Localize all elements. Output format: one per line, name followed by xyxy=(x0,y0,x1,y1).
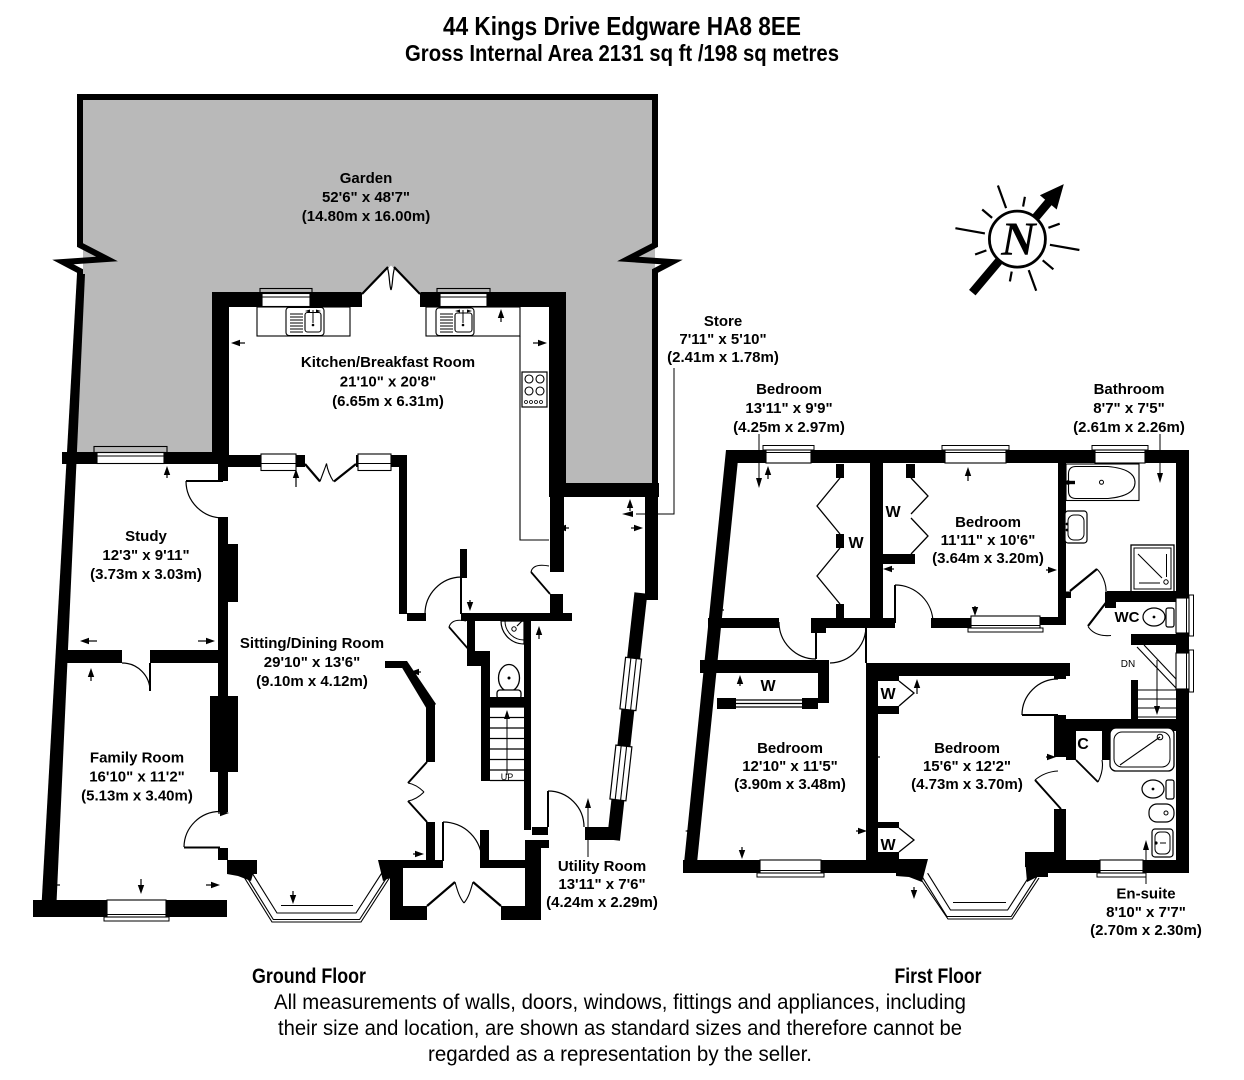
svg-text:Sitting/Dining Room: Sitting/Dining Room xyxy=(240,635,384,652)
svg-text:W: W xyxy=(880,837,896,854)
svg-text:their size and location, are s: their size and location, are shown as st… xyxy=(278,1017,962,1040)
svg-text:All measurements of walls, doo: All measurements of walls, doors, window… xyxy=(274,991,966,1014)
svg-text:52'6" x 48'7": 52'6" x 48'7" xyxy=(322,189,410,206)
svg-text:Ground Floor: Ground Floor xyxy=(252,965,366,988)
svg-text:Bedroom: Bedroom xyxy=(934,740,1000,757)
svg-text:12'3" x 9'11": 12'3" x 9'11" xyxy=(102,547,189,564)
svg-text:WC: WC xyxy=(1115,609,1140,626)
svg-text:Family Room: Family Room xyxy=(90,750,184,767)
svg-text:15'6" x 12'2": 15'6" x 12'2" xyxy=(923,758,1011,775)
svg-text:(3.64m x 3.20m): (3.64m x 3.20m) xyxy=(932,550,1044,567)
svg-text:Study: Study xyxy=(125,528,167,545)
svg-text:Gross Internal Area 2131 sq ft: Gross Internal Area 2131 sq ft /198 sq m… xyxy=(405,40,839,66)
svg-text:44 Kings Drive Edgware HA8 8EE: 44 Kings Drive Edgware HA8 8EE xyxy=(443,11,801,41)
svg-text:(4.25m x 2.97m): (4.25m x 2.97m) xyxy=(733,419,845,436)
svg-text:W: W xyxy=(885,504,901,521)
svg-text:Kitchen/Breakfast Room: Kitchen/Breakfast Room xyxy=(301,354,475,371)
svg-text:(4.24m x 2.29m): (4.24m x 2.29m) xyxy=(546,894,658,911)
svg-text:Store: Store xyxy=(704,313,742,330)
svg-text:16'10" x 11'2": 16'10" x 11'2" xyxy=(89,769,185,786)
svg-text:C: C xyxy=(1077,736,1089,753)
svg-text:N: N xyxy=(1000,213,1038,266)
svg-text:21'10" x 20'8": 21'10" x 20'8" xyxy=(340,374,436,391)
svg-text:(2.70m x 2.30m): (2.70m x 2.30m) xyxy=(1090,922,1202,939)
svg-text:Bedroom: Bedroom xyxy=(955,514,1021,531)
svg-text:(14.80m x 16.00m): (14.80m x 16.00m) xyxy=(302,208,430,225)
svg-text:En-suite: En-suite xyxy=(1116,886,1175,903)
svg-text:(2.41m x 1.78m): (2.41m x 1.78m) xyxy=(667,349,779,366)
svg-text:W: W xyxy=(880,686,896,703)
svg-text:8'10" x 7'7": 8'10" x 7'7" xyxy=(1106,904,1186,921)
svg-text:(4.73m x 3.70m): (4.73m x 3.70m) xyxy=(911,776,1023,793)
svg-text:W: W xyxy=(848,535,864,552)
svg-text:Bedroom: Bedroom xyxy=(756,381,822,398)
svg-text:7'11" x 5'10": 7'11" x 5'10" xyxy=(679,331,766,348)
svg-text:(3.90m x 3.48m): (3.90m x 3.48m) xyxy=(734,776,846,793)
svg-text:First Floor: First Floor xyxy=(895,965,982,988)
svg-text:11'11" x 10'6": 11'11" x 10'6" xyxy=(941,532,1036,549)
svg-text:12'10" x 11'5": 12'10" x 11'5" xyxy=(742,758,838,775)
svg-text:Bathroom: Bathroom xyxy=(1094,381,1165,398)
svg-text:DN: DN xyxy=(1121,659,1135,670)
svg-text:(3.73m x 3.03m): (3.73m x 3.03m) xyxy=(90,566,202,583)
svg-text:(2.61m x 2.26m): (2.61m x 2.26m) xyxy=(1073,419,1185,436)
svg-text:8'7" x 7'5": 8'7" x 7'5" xyxy=(1093,400,1164,417)
svg-text:Bedroom: Bedroom xyxy=(757,740,823,757)
svg-text:(9.10m x 4.12m): (9.10m x 4.12m) xyxy=(256,673,368,690)
svg-text:(6.65m x 6.31m): (6.65m x 6.31m) xyxy=(332,393,444,410)
svg-text:29'10" x 13'6": 29'10" x 13'6" xyxy=(264,654,360,671)
svg-text:Garden: Garden xyxy=(340,170,393,187)
svg-text:13'11" x 9'9": 13'11" x 9'9" xyxy=(745,400,832,417)
svg-text:W: W xyxy=(760,678,776,695)
svg-text:regarded as a representation b: regarded as a representation by the sell… xyxy=(428,1043,812,1066)
svg-text:(5.13m x 3.40m): (5.13m x 3.40m) xyxy=(81,788,193,805)
svg-text:Utility Room: Utility Room xyxy=(558,858,646,875)
svg-text:UP: UP xyxy=(501,772,514,782)
svg-text:13'11" x 7'6": 13'11" x 7'6" xyxy=(558,876,645,893)
